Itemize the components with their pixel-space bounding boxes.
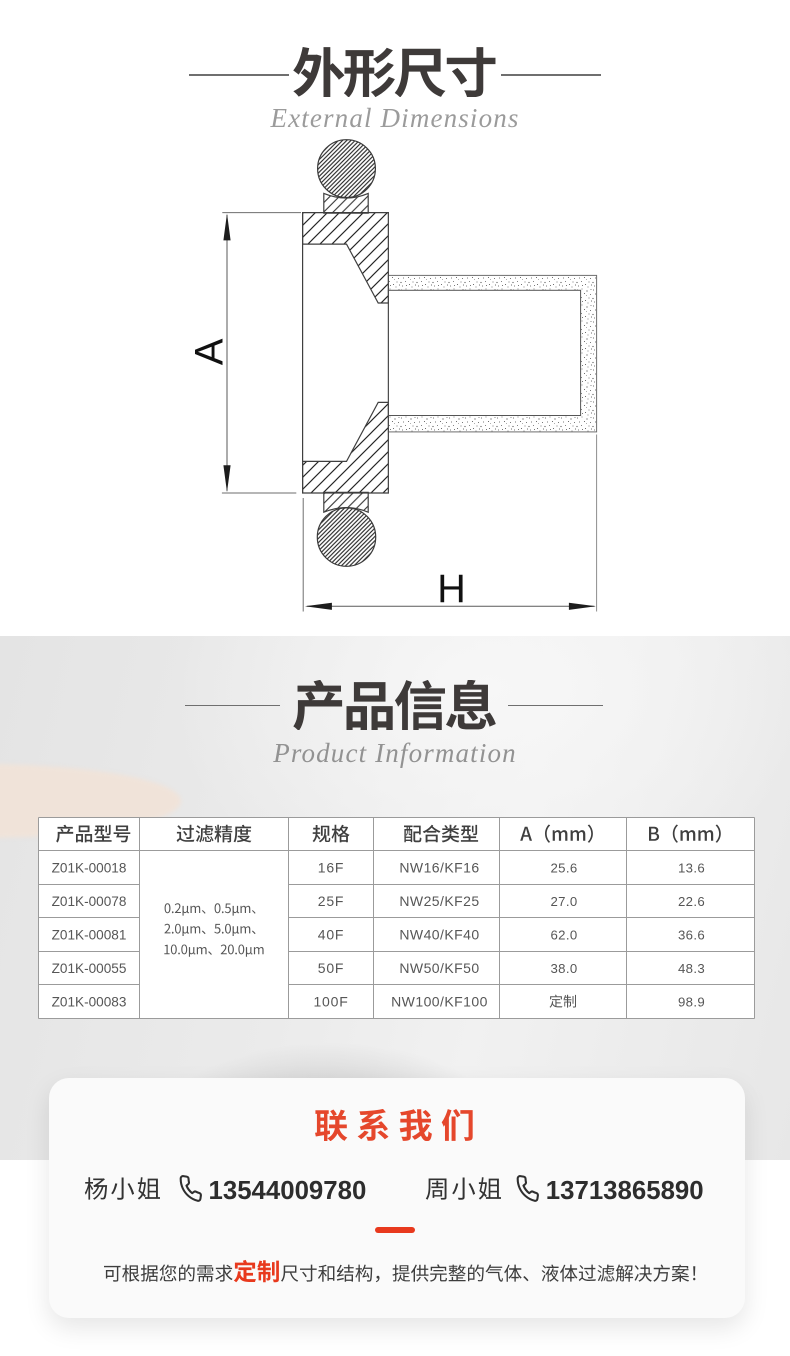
svg-text:25.6: 25.6 (550, 860, 577, 875)
svg-text:NW50/KF50: NW50/KF50 (399, 960, 479, 976)
svg-text:48.3: 48.3 (678, 961, 705, 976)
svg-text:38.0: 38.0 (550, 961, 577, 976)
svg-text:Z01K-00078: Z01K-00078 (52, 894, 127, 909)
svg-text:22.6: 22.6 (678, 894, 705, 909)
svg-text:NW25/KF25: NW25/KF25 (399, 893, 479, 909)
svg-text:Z01K-00055: Z01K-00055 (52, 961, 127, 976)
svg-text:16F: 16F (318, 859, 345, 875)
svg-text:36.6: 36.6 (678, 927, 705, 942)
svg-text:25F: 25F (318, 893, 345, 909)
svg-text:98.9: 98.9 (678, 994, 705, 1009)
svg-text:NW16/KF16: NW16/KF16 (399, 859, 479, 875)
svg-text:NW100/KF100: NW100/KF100 (391, 993, 488, 1009)
svg-text:Z01K-00018: Z01K-00018 (52, 860, 127, 875)
svg-text:NW40/KF40: NW40/KF40 (399, 926, 479, 942)
svg-text:27.0: 27.0 (550, 894, 577, 909)
svg-text:H: H (437, 567, 466, 611)
svg-text:40F: 40F (318, 926, 345, 942)
svg-text:100F: 100F (313, 993, 348, 1009)
svg-text:Z01K-00083: Z01K-00083 (52, 994, 127, 1009)
svg-text:Z01K-00081: Z01K-00081 (52, 927, 127, 942)
svg-text:13.6: 13.6 (678, 860, 705, 875)
svg-text:A: A (187, 338, 231, 365)
svg-text:62.0: 62.0 (550, 927, 577, 942)
svg-text:50F: 50F (318, 960, 345, 976)
